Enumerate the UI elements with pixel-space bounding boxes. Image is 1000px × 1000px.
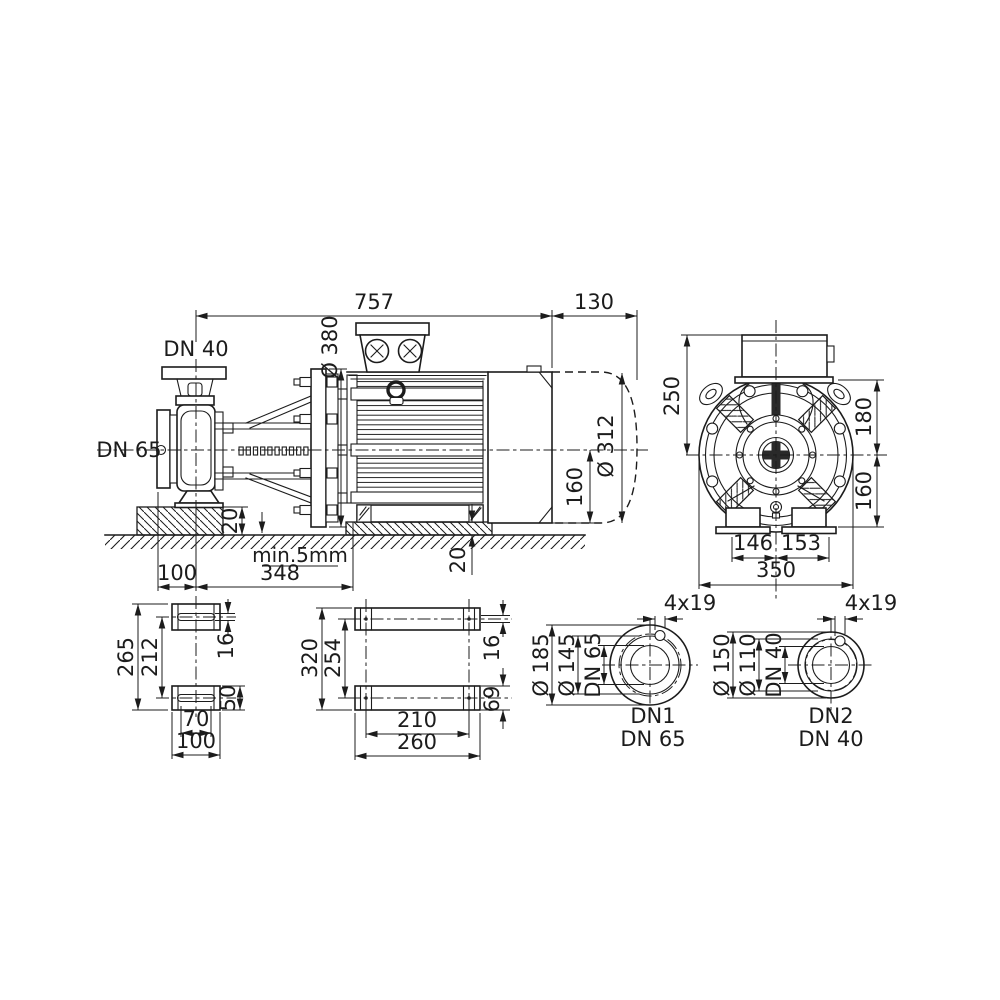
drawing-canvas: 757 130 Ø 380 Ø 312 160 20 20 min.5mm: [0, 0, 1000, 1000]
pump-unit: [157, 367, 312, 508]
dim-motorfoot-hole-width: 16: [480, 635, 504, 662]
dim-dn2-nominal-bore: DN 40: [762, 632, 786, 697]
dim-pumpfoot-bolt-spacing: 212: [138, 637, 162, 677]
flange-dn1-caption-line1: DN1: [630, 704, 675, 728]
dim-axis-to-motor-top: 180: [852, 397, 876, 437]
dim-foundation-height: 20: [218, 508, 242, 535]
pump-foot: [179, 491, 219, 503]
dim-axis-to-base: 160: [852, 471, 876, 511]
label-suction-port: DN 65: [96, 438, 161, 462]
dim-axis-to-motor-foot: 348: [260, 561, 300, 585]
dim-flange-diameter: Ø 380: [318, 315, 342, 378]
dim-motorfoot-foot-width: 260: [397, 730, 437, 754]
dim-dn1-nominal-bore: DN 65: [581, 632, 605, 697]
dim-motorfoot-bolt-spacing: 254: [321, 638, 345, 678]
label-discharge-port: DN 40: [163, 337, 228, 361]
dim-foot-right: 153: [781, 531, 821, 555]
dim-dn1-bolt-circle: Ø 145: [555, 633, 579, 696]
dim-dn2-bolt-holes: 4x19: [845, 591, 898, 615]
dim-pumpfoot-slot-width: 16: [214, 633, 238, 660]
motor-body: [338, 372, 488, 522]
dim-overall-width: 350: [756, 558, 796, 582]
flange-dn2-bolt-hole: [835, 636, 845, 646]
front-view: 250 180 160 146 153 350: [660, 320, 888, 600]
flange-dn2-caption-line2: DN 40: [798, 727, 863, 751]
flange-dn1-caption-line2: DN 65: [620, 727, 685, 751]
pump-foot-plan: 265 212 16 50 70 100: [114, 596, 245, 759]
dim-motor-diameter: Ø 312: [594, 414, 618, 477]
dim-overall-length: 757: [354, 290, 394, 314]
dim-pumpfoot-outer-length: 265: [114, 637, 138, 677]
flange-dn2-caption-line1: DN2: [808, 704, 853, 728]
dim-box-top-to-axis: 250: [660, 376, 684, 416]
pump-dimension-drawing: 757 130 Ø 380 Ø 312 160 20 20 min.5mm: [0, 0, 1000, 1000]
motor-foot-plan: 320 254 16 69 210 260: [298, 599, 512, 760]
terminal-box-front: [735, 335, 834, 383]
motor-feet: [357, 505, 483, 522]
dim-motorfoot-foot-length: 69: [480, 686, 504, 713]
dim-pumpfoot-slot-spacing: 70: [183, 707, 210, 731]
dim-suction-face-to-axis: 100: [157, 561, 197, 585]
dim-motorfoot-outer-length: 320: [298, 638, 322, 678]
side-view: 757 130 Ø 380 Ø 312 160 20 20 min.5mm: [96, 290, 648, 591]
flange-dn2-view: Ø 150 Ø 110 DN 40 4x19 DN2 DN 40: [710, 591, 897, 751]
dim-dn1-outer-diameter: Ø 185: [529, 633, 553, 696]
dim-foot-pad-height: 20: [446, 547, 470, 574]
flange-dn1-dimensions: Ø 185 Ø 145 DN 65 4x19 DN1 DN 65: [529, 591, 716, 751]
dim-shaft-height: 160: [563, 467, 587, 507]
fan-cover: [488, 366, 552, 523]
flange-dn1-bolt-hole: [655, 631, 665, 641]
dim-pumpfoot-pad-length: 50: [216, 685, 240, 712]
terminal-box: [356, 323, 429, 372]
flange-dn1-view: Ø 185 Ø 145 DN 65 4x19 DN1 DN 65: [529, 591, 716, 751]
dim-motorfoot-bolt-width: 210: [397, 708, 437, 732]
motor-flange: [311, 369, 326, 527]
dim-dn1-bolt-holes: 4x19: [664, 591, 717, 615]
dim-dn2-outer-diameter: Ø 150: [710, 633, 734, 696]
flange-dn2-dimensions: Ø 150 Ø 110 DN 40 4x19 DN2 DN 40: [710, 591, 897, 751]
dim-foot-left: 146: [733, 531, 773, 555]
coupling-guard-slots: [239, 447, 308, 455]
dim-motor-overhang: 130: [574, 290, 614, 314]
dim-dn2-bolt-circle: Ø 110: [736, 633, 760, 696]
discharge-flange: [162, 367, 226, 405]
dim-pumpfoot-pad-width: 100: [176, 729, 216, 753]
